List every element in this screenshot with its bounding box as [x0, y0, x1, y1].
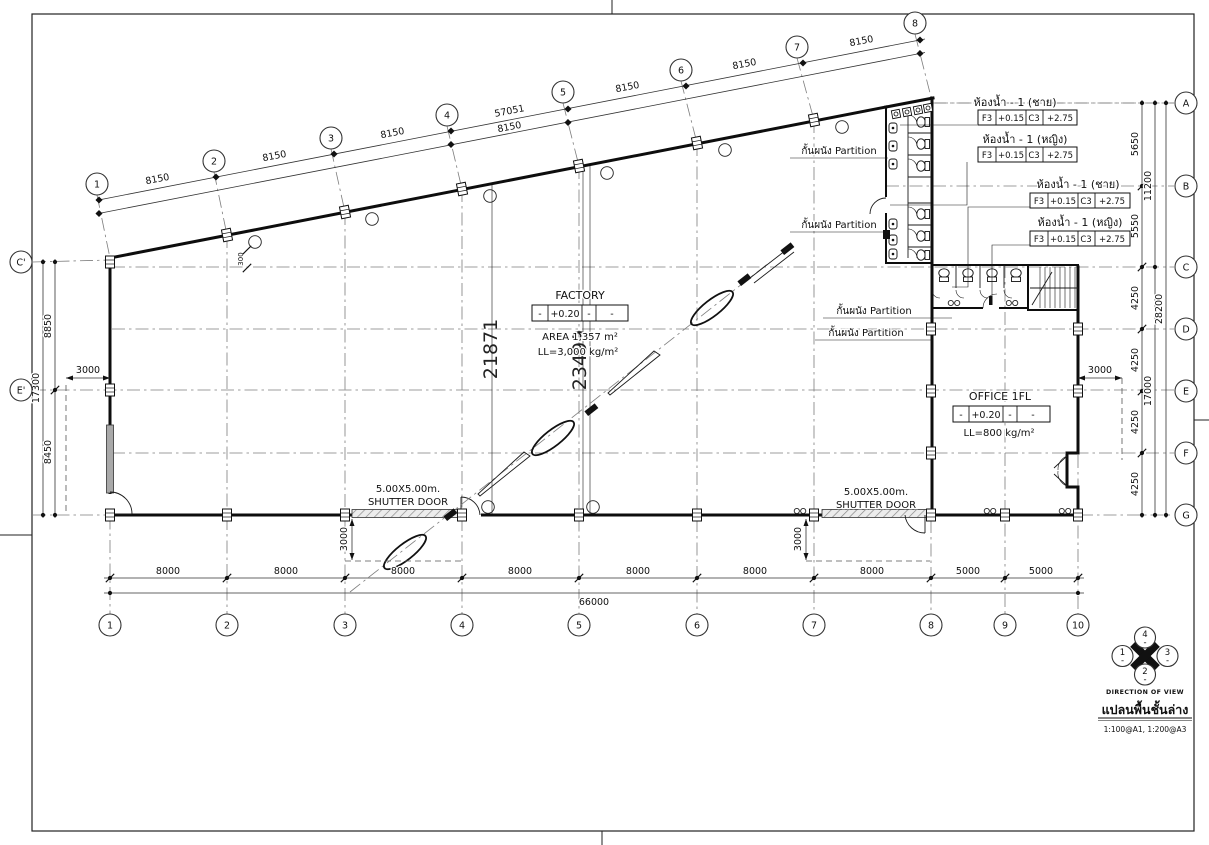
direction-of-view: 4 - 1 - 3 - 2 - DIRECTION OF VIEW แปลนพื… [1098, 627, 1192, 734]
dim-top-1: 8150 [145, 172, 171, 187]
grid-bubble-right-D: D [1175, 318, 1197, 340]
svg-text:F3: F3 [982, 151, 992, 161]
office-label: OFFICE 1FL - +0.20 - - LL=800 kg/m² [953, 390, 1050, 439]
svg-text:-: - [1166, 656, 1169, 666]
grid-bubble-top-4: 4 [436, 104, 458, 126]
partition-label-3: กั้นผนัง Partition [836, 303, 911, 317]
grid-bubbles-bottom: 1 2 3 4 5 6 7 8 9 10 [99, 614, 1089, 636]
svg-text:E': E' [17, 386, 26, 397]
partition-label-4: กั้นผนัง Partition [828, 325, 903, 339]
grid-bubble-right-A: A [1175, 92, 1197, 114]
drawing-scale: 1:100@A1, 1:200@A3 [1104, 725, 1187, 734]
dim-bot-2: 8000 [274, 566, 298, 577]
svg-text:D: D [1182, 325, 1189, 336]
svg-text:F: F [1183, 449, 1188, 460]
svg-text:+0.15: +0.15 [1050, 235, 1076, 245]
grid-bubble-right-F: F [1175, 442, 1197, 464]
grid-bubble-left-C': C' [10, 251, 32, 273]
svg-text:-: - [1121, 656, 1124, 666]
svg-text:C': C' [16, 258, 25, 269]
partition-label-1: กั้นผนัง Partition [801, 143, 876, 157]
grid-bubble-right-C: C [1175, 256, 1197, 278]
svg-text:+0.20: +0.20 [971, 410, 1000, 421]
svg-text:-: - [1008, 410, 1011, 421]
toilet-tag-3: F3 +0.15 C3 +2.75 [1030, 193, 1130, 208]
dim-right-total: 28200 [1154, 294, 1165, 324]
shutter2-name: SHUTTER DOOR [836, 500, 916, 511]
svg-text:C3: C3 [1080, 197, 1091, 207]
svg-text:-: - [610, 309, 613, 320]
dim-right-mid-1: 11200 [1143, 171, 1154, 201]
svg-text:3: 3 [342, 621, 348, 632]
grid-bubble-top-2: 2 [203, 150, 225, 172]
dim-right-mid-2: 17000 [1143, 376, 1154, 406]
svg-text:+0.15: +0.15 [1050, 197, 1076, 207]
toilet-title-2: ห้องน้ำ - 1 (หญิง) [983, 131, 1068, 146]
shutter2-size: 5.00X5.00m. [844, 487, 908, 498]
svg-text:+2.75: +2.75 [1099, 235, 1125, 245]
svg-text:C3: C3 [1028, 151, 1039, 161]
svg-text:F3: F3 [1034, 197, 1044, 207]
grid-bubble-right-B: B [1175, 175, 1197, 197]
dim-top-3: 8150 [380, 126, 406, 141]
svg-text:4: 4 [444, 111, 450, 122]
dim-top-total: 57051 [494, 103, 526, 120]
toilet-tag-1: F3 +0.15 C3 +2.75 [978, 110, 1077, 125]
dim-left-1: 8850 [43, 314, 54, 338]
grid-bubbles-top: 1 2 3 4 5 6 7 8 [86, 12, 926, 195]
dim-right-5: 4250 [1130, 410, 1141, 434]
shutter-door-labels: 5.00X5.00m. SHUTTER DOOR 5.00X5.00m. SHU… [368, 484, 916, 511]
svg-text:9: 9 [1002, 621, 1008, 632]
svg-text:2: 2 [211, 157, 217, 168]
svg-text:F3: F3 [982, 114, 992, 124]
svg-text:G: G [1182, 511, 1189, 522]
toilet-title-3: ห้องน้ำ - 1 (ชาย) [1036, 176, 1119, 191]
grid-bubble-bottom-3: 3 [334, 614, 356, 636]
dim-bot-5: 8000 [626, 566, 650, 577]
svg-text:7: 7 [794, 43, 800, 54]
svg-text:B: B [1183, 182, 1190, 193]
partition-label-2: กั้นผนัง Partition [801, 217, 876, 231]
grid-bubble-right-G: G [1175, 504, 1197, 526]
office-side-door [1054, 456, 1067, 486]
dim-right-2: 5550 [1130, 214, 1141, 238]
grid-bubble-bottom-8: 8 [920, 614, 942, 636]
dim-right-4: 4250 [1130, 348, 1141, 372]
dim-canopy-left: 3000 [76, 365, 100, 376]
dim-left-total: 17300 [31, 373, 42, 403]
svg-text:-: - [1031, 410, 1034, 421]
svg-text:2: 2 [224, 621, 230, 632]
dim-top-6: 8150 [732, 57, 758, 72]
toilet-labels: ห้องน้ำ - 1 (ชาย) F3 +0.15 C3 +2.75 ห้อง… [890, 94, 1130, 300]
svg-text:-: - [1143, 675, 1146, 685]
grid-bubble-top-6: 6 [670, 59, 692, 81]
factory-label: FACTORY - +0.20 - - AREA 1,357 m² LL=3,0… [532, 289, 628, 358]
svg-text:+0.15: +0.15 [998, 151, 1024, 161]
svg-text:+2.75: +2.75 [1047, 114, 1073, 124]
svg-text:C3: C3 [1028, 114, 1039, 124]
span-dim-a: 21871 [480, 319, 502, 379]
svg-text:A: A [1183, 99, 1190, 110]
dim-bot-4: 8000 [508, 566, 532, 577]
grid-bubble-bottom-1: 1 [99, 614, 121, 636]
dim-bot-3: 8000 [391, 566, 415, 577]
dim-canopy-door1: 3000 [339, 527, 350, 551]
grid-bubbles-left: C' E' [10, 251, 32, 401]
grid-bubble-bottom-4: 4 [451, 614, 473, 636]
svg-text:-: - [587, 309, 590, 320]
dim-top-5: 8150 [615, 80, 641, 95]
factory-name: FACTORY [555, 289, 605, 302]
grid-bubble-right-E: E [1175, 380, 1197, 402]
grid-bubble-top-7: 7 [786, 36, 808, 58]
grid-bubble-top-3: 3 [320, 127, 342, 149]
grid-bubble-bottom-7: 7 [803, 614, 825, 636]
dim-right-1: 5650 [1130, 132, 1141, 156]
dim-top-7: 8150 [849, 34, 875, 49]
svg-text:1: 1 [107, 621, 113, 632]
shutter1-name: SHUTTER DOOR [368, 497, 448, 508]
svg-text:6: 6 [678, 66, 684, 77]
svg-text:C3: C3 [1080, 235, 1091, 245]
bottom-dimensions: 8000 8000 8000 8000 8000 8000 8000 5000 … [104, 566, 1084, 608]
svg-text:4: 4 [459, 621, 465, 632]
toilet-block-lower [932, 265, 1028, 311]
left-wall-door [106, 425, 132, 514]
dim-canopy-right: 3000 [1088, 365, 1112, 376]
grid-bubble-top-5: 5 [552, 81, 574, 103]
svg-text:6: 6 [694, 621, 700, 632]
grid-bubble-top-8: 8 [904, 12, 926, 34]
toilet-wing [870, 103, 933, 263]
svg-text:+0.20: +0.20 [550, 309, 579, 320]
svg-text:10: 10 [1072, 621, 1084, 632]
svg-text:+2.75: +2.75 [1099, 197, 1125, 207]
staircase [1028, 265, 1078, 310]
compass-caption: DIRECTION OF VIEW [1106, 689, 1184, 696]
dim-top-4: 8150 [497, 120, 523, 135]
dim-bot-8: 5000 [956, 566, 980, 577]
toilet-tag-2: F3 +0.15 C3 +2.75 [978, 147, 1077, 162]
svg-text:1: 1 [94, 180, 100, 191]
dim-bot-9: 5000 [1029, 566, 1053, 577]
svg-text:-: - [1143, 638, 1146, 648]
svg-text:7: 7 [811, 621, 817, 632]
toilet-title-4: ห้องน้ำ - 1 (หญิง) [1038, 214, 1123, 229]
grid-bubble-bottom-9: 9 [994, 614, 1016, 636]
grid-bubble-bottom-2: 2 [216, 614, 238, 636]
left-dimensions: 8850 8450 17300 [31, 259, 59, 518]
dim-right-6: 4250 [1130, 472, 1141, 496]
dim-bot-6: 8000 [743, 566, 767, 577]
grid-bubble-bottom-6: 6 [686, 614, 708, 636]
dim-canopy-door2: 3000 [793, 527, 804, 551]
drawing-sheet: 21871 23499 [0, 0, 1209, 845]
grid-bubble-bottom-10: 10 [1067, 614, 1089, 636]
dim-right-3: 4250 [1130, 286, 1141, 310]
svg-text:+2.75: +2.75 [1047, 151, 1073, 161]
svg-text:C: C [1183, 263, 1190, 274]
factory-area: AREA 1,357 m² [542, 332, 618, 343]
grid-bubble-left-E': E' [10, 379, 32, 401]
office-load: LL=800 kg/m² [963, 428, 1034, 439]
office-name: OFFICE 1FL [969, 390, 1032, 403]
shutter1-size: 5.00X5.00m. [376, 484, 440, 495]
svg-text:3: 3 [328, 134, 334, 145]
svg-text:+0.15: +0.15 [998, 114, 1024, 124]
svg-text:5: 5 [576, 621, 582, 632]
dim-corner-offset: 300 [237, 252, 245, 265]
grid-bubble-bottom-5: 5 [568, 614, 590, 636]
shutter-door-2 [822, 510, 928, 534]
floor-plan-canvas: 21871 23499 [0, 0, 1209, 845]
dim-bot-total: 66000 [579, 597, 609, 608]
top-dimensions: 8150 8150 8150 8150 8150 8150 8150 57051 [95, 34, 925, 217]
svg-text:8: 8 [912, 19, 918, 30]
dim-bot-1: 8000 [156, 566, 180, 577]
svg-text:F3: F3 [1034, 235, 1044, 245]
dim-top-2: 8150 [262, 149, 288, 164]
grid-bubble-top-1: 1 [86, 173, 108, 195]
svg-text:5: 5 [560, 88, 566, 99]
factory-load: LL=3,000 kg/m² [538, 347, 619, 358]
toilet-tag-4: F3 +0.15 C3 +2.75 [1030, 231, 1130, 246]
toilet-title-1: ห้องน้ำ - 1 (ชาย) [973, 94, 1056, 109]
dim-left-2: 8450 [43, 440, 54, 464]
svg-text:E: E [1183, 387, 1189, 398]
svg-text:-: - [959, 410, 962, 421]
svg-text:8: 8 [928, 621, 934, 632]
svg-text:-: - [538, 309, 541, 320]
dim-bot-7: 8000 [860, 566, 884, 577]
drawing-title: แปลนพื้นชั้นล่าง [1102, 700, 1189, 717]
